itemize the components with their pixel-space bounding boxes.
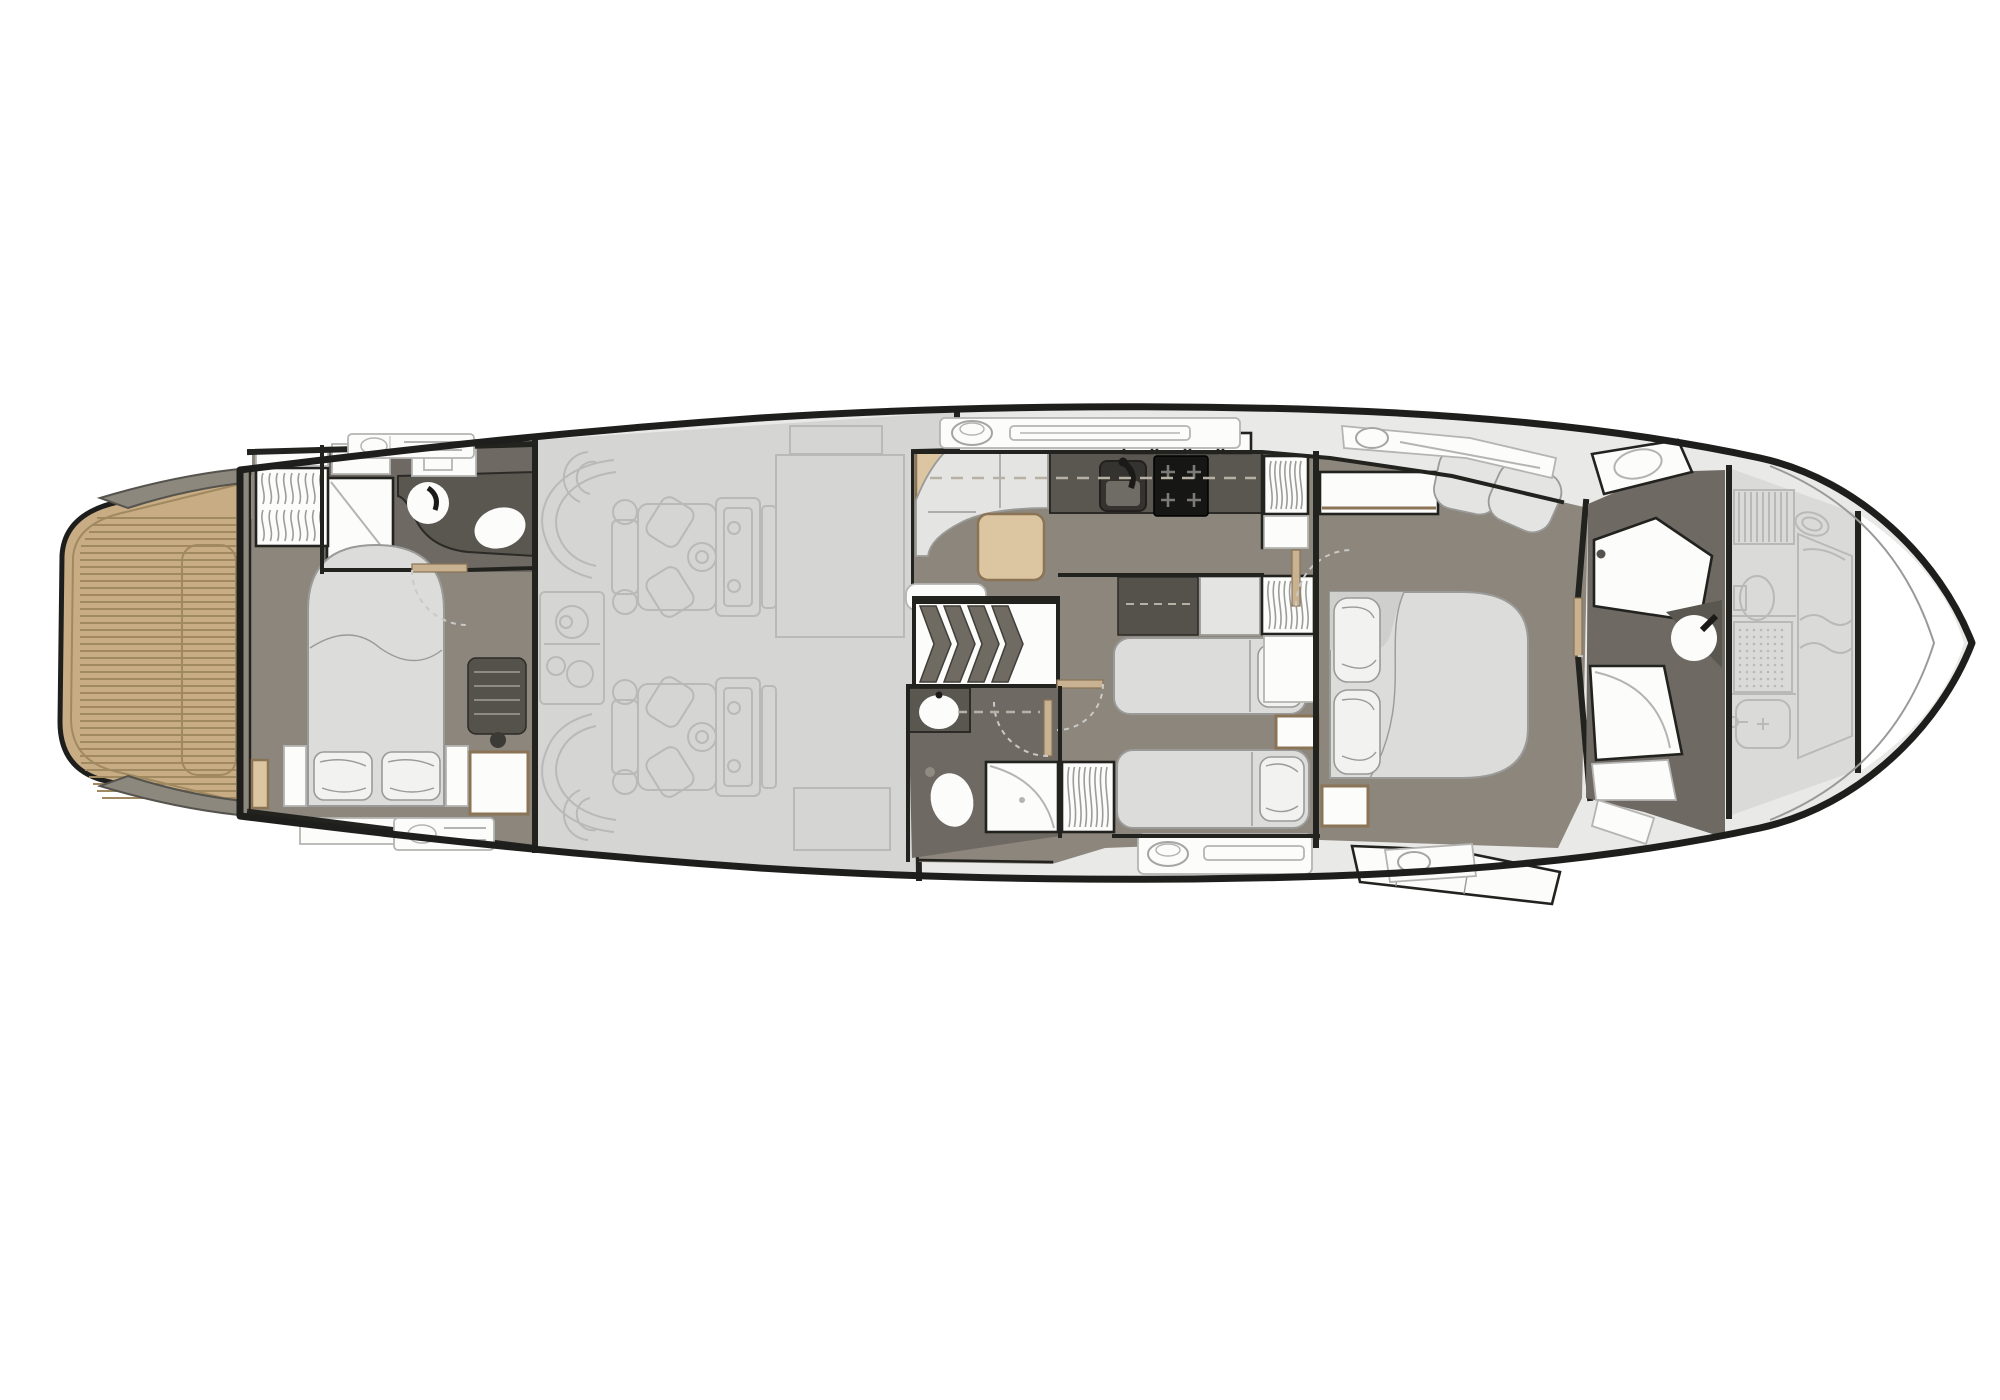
- tray-dot: [1767, 664, 1770, 667]
- texture-line: [80, 518, 236, 798]
- tray-dot: [1753, 636, 1756, 639]
- aft-wood-locker: [470, 752, 528, 814]
- tray-dot: [1774, 643, 1777, 646]
- tray-dot: [1753, 650, 1756, 653]
- tray-dot: [1746, 657, 1749, 660]
- aft-drawer-unit: [468, 658, 526, 734]
- tray-dot: [1760, 643, 1763, 646]
- master-pillow-top: [1334, 598, 1380, 682]
- mid-basin-faucet: [936, 692, 943, 699]
- aft-pillow-left: [314, 752, 372, 800]
- tray-dot: [1739, 685, 1742, 688]
- forward-bathroom: [1586, 440, 1725, 838]
- yacht-floor-plan-canvas: [0, 0, 2000, 1400]
- staircase: [914, 602, 1058, 686]
- tray-dot: [1767, 678, 1770, 681]
- twin-cabin-door: [1057, 680, 1103, 688]
- toilet-flush: [1597, 550, 1606, 559]
- tray-dot: [1781, 664, 1784, 667]
- tray-dot: [1753, 664, 1756, 667]
- fwd-lower-cabinet: [1592, 760, 1676, 800]
- tray-dot: [1753, 671, 1756, 674]
- tray-dot: [1760, 664, 1763, 667]
- tray-dot: [1767, 650, 1770, 653]
- tray-dot: [1739, 678, 1742, 681]
- wardrobe-shelf: [1264, 516, 1308, 548]
- tray-dot: [1781, 657, 1784, 660]
- fender: [1148, 842, 1188, 866]
- dinette-table: [978, 514, 1044, 580]
- fender: [952, 421, 992, 445]
- aft-bath-wall-south2: [468, 568, 535, 570]
- tray-dot: [1746, 636, 1749, 639]
- tray-dot: [1760, 685, 1763, 688]
- tray-dot: [1739, 629, 1742, 632]
- tray-dot: [1739, 671, 1742, 674]
- engine-room: [535, 412, 957, 878]
- tray-dot: [1739, 657, 1742, 660]
- tray-dot: [1767, 643, 1770, 646]
- tray-dot: [1746, 671, 1749, 674]
- aft-bath-door: [412, 564, 467, 572]
- tray-dot: [1739, 664, 1742, 667]
- fwd-bath-door: [1574, 598, 1582, 656]
- mid-bath-door: [1044, 700, 1052, 756]
- tray-dot: [1760, 678, 1763, 681]
- tray-dot: [1746, 685, 1749, 688]
- tray-dot: [1746, 643, 1749, 646]
- twin-nightstand: [1276, 716, 1318, 748]
- tray-dot: [1760, 671, 1763, 674]
- tray-dot: [1760, 629, 1763, 632]
- swim-platform: [60, 472, 240, 814]
- tray-dot: [1774, 650, 1777, 653]
- aft-nightstand-left: [284, 746, 306, 806]
- tray-dot: [1767, 629, 1770, 632]
- tray-dot: [1760, 636, 1763, 639]
- tray-dot: [1746, 650, 1749, 653]
- tray-dot: [1760, 650, 1763, 653]
- tray-dot: [1767, 636, 1770, 639]
- bow-crew-cabin: [1728, 468, 1858, 816]
- tray-dot: [1767, 671, 1770, 674]
- aft-pillow-right: [382, 752, 440, 800]
- drawer-knob: [490, 732, 506, 748]
- tray-dot: [1774, 685, 1777, 688]
- tray-dot: [1781, 643, 1784, 646]
- tray-dot: [1746, 629, 1749, 632]
- tray-dot: [1753, 643, 1756, 646]
- master-pillow-bottom: [1334, 690, 1380, 774]
- drain: [1019, 797, 1025, 803]
- aft-nightstand-right: [446, 746, 468, 806]
- mid-basin: [919, 695, 959, 729]
- tray-dot: [1781, 685, 1784, 688]
- fender: [1356, 428, 1388, 448]
- wardrobe-cabinet: [1264, 636, 1314, 702]
- tray-dot: [1767, 657, 1770, 660]
- master-nightstand: [1322, 786, 1368, 826]
- tray-dot: [1739, 650, 1742, 653]
- deck-band-mid-bottom: [1138, 834, 1312, 874]
- tray-dot: [1781, 629, 1784, 632]
- tray-dot: [1753, 678, 1756, 681]
- cooktop: [1154, 456, 1208, 516]
- master-door: [1292, 550, 1300, 606]
- tray-dot: [1774, 657, 1777, 660]
- tray-dot: [1774, 671, 1777, 674]
- twin-desk: [1118, 577, 1198, 635]
- tray-dot: [1739, 643, 1742, 646]
- twin-seat: [1200, 577, 1260, 635]
- tray-dot: [1774, 629, 1777, 632]
- tray-dot: [1774, 664, 1777, 667]
- tray-dot: [1781, 636, 1784, 639]
- tray-dot: [1774, 636, 1777, 639]
- tray-dot: [1781, 678, 1784, 681]
- tray-dot: [1760, 657, 1763, 660]
- flush-button: [925, 767, 935, 777]
- tray-dot: [1767, 685, 1770, 688]
- yacht-lower-deck-plan: [0, 0, 2000, 1400]
- aft-hanging-locker: [256, 468, 328, 546]
- tray-dot: [1753, 657, 1756, 660]
- aft-cabin: [250, 440, 535, 848]
- tray-dot: [1753, 629, 1756, 632]
- tray-dot: [1746, 664, 1749, 667]
- tray-dot: [1781, 650, 1784, 653]
- fwd-shower: [1590, 666, 1682, 760]
- teak-planks: [80, 518, 236, 798]
- tray-dot: [1746, 678, 1749, 681]
- tray-dot: [1781, 671, 1784, 674]
- tray-dot: [1739, 636, 1742, 639]
- aft-side-locker: [252, 760, 268, 808]
- tray-dot: [1774, 678, 1777, 681]
- deck-band-mid-top: [940, 418, 1240, 448]
- tray-dot: [1753, 685, 1756, 688]
